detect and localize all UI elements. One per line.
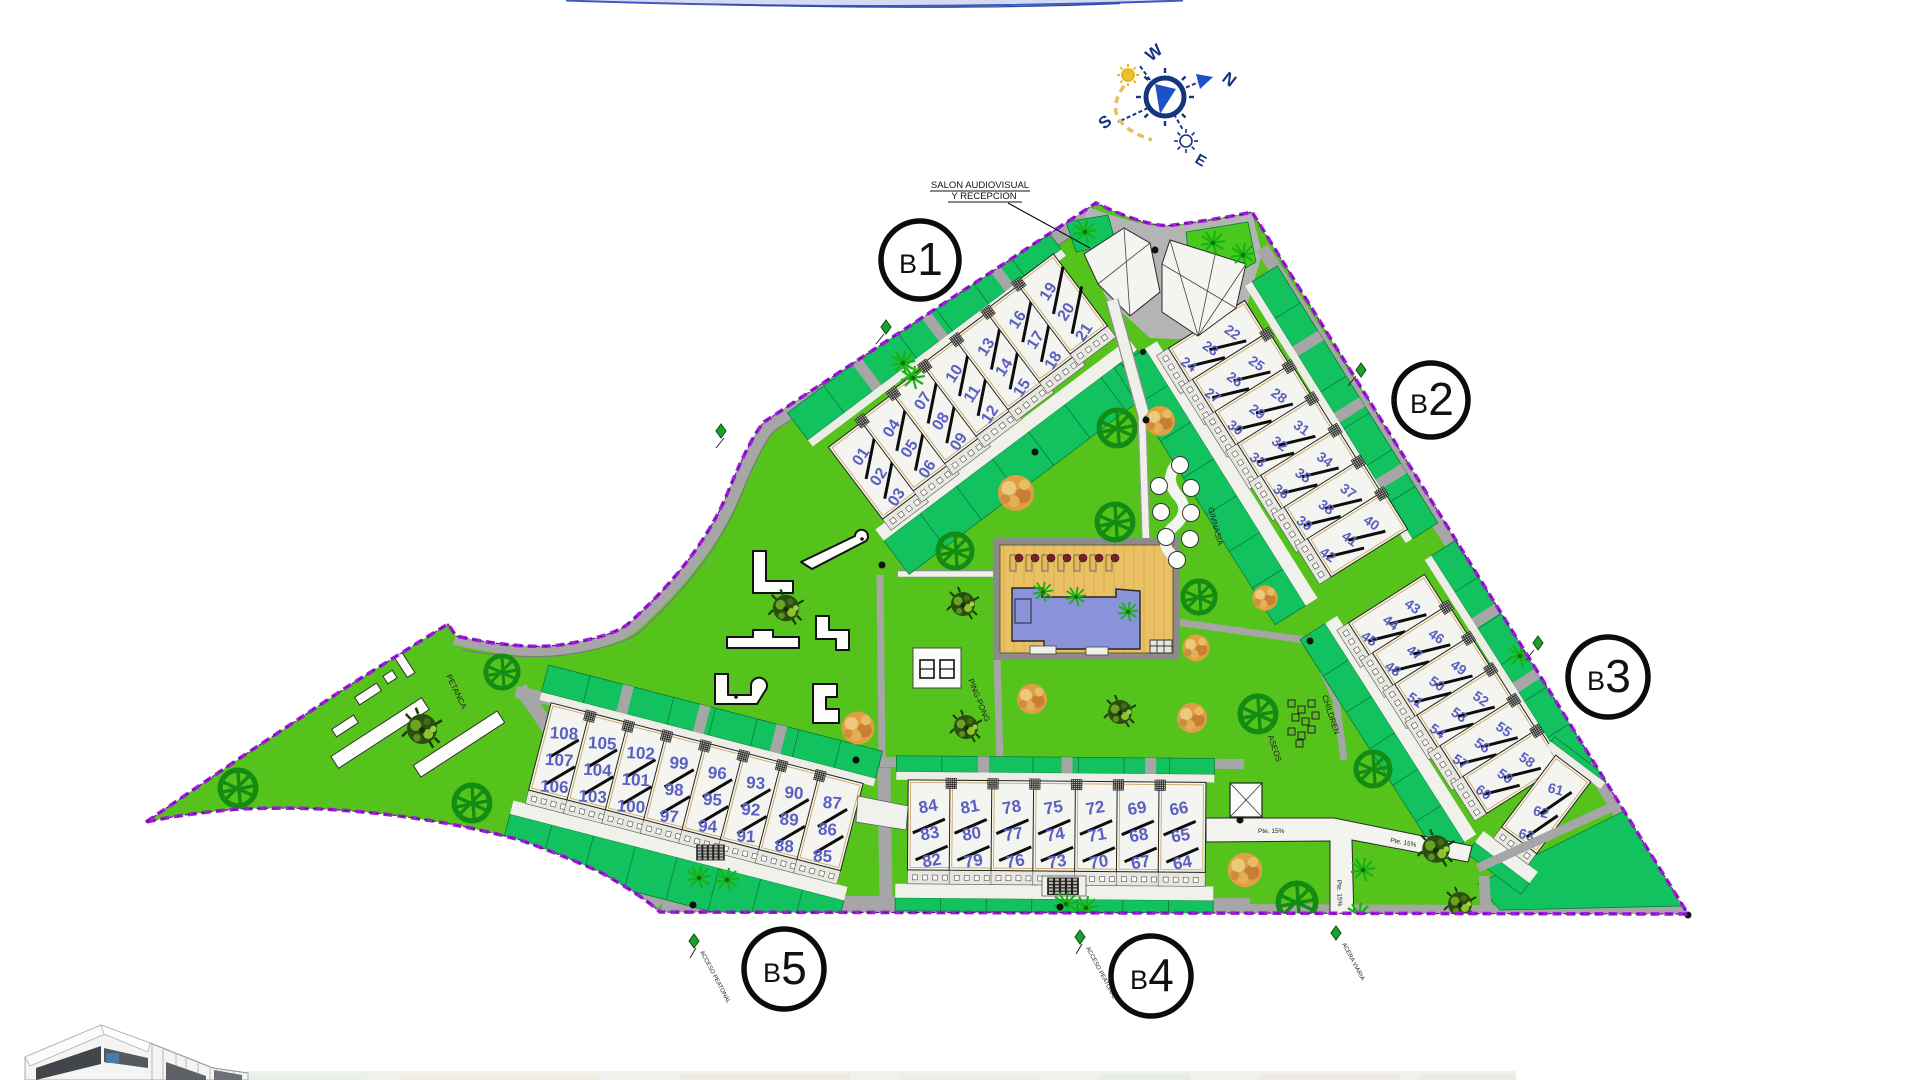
svg-text:88: 88: [774, 836, 794, 856]
svg-text:4: 4: [1148, 949, 1174, 1001]
svg-text:B: B: [1410, 389, 1428, 419]
svg-text:67: 67: [1130, 851, 1152, 873]
svg-text:80: 80: [961, 823, 983, 845]
svg-text:96: 96: [707, 763, 727, 783]
svg-text:94: 94: [698, 816, 719, 836]
svg-text:SALON AUDIOVISUAL: SALON AUDIOVISUAL: [931, 180, 1029, 191]
svg-text:91: 91: [736, 826, 756, 846]
svg-text:78: 78: [1001, 796, 1023, 818]
svg-text:95: 95: [702, 790, 722, 810]
svg-text:82: 82: [921, 850, 943, 872]
svg-text:2: 2: [1428, 373, 1454, 425]
svg-text:92: 92: [741, 800, 761, 820]
svg-text:B: B: [1587, 666, 1605, 696]
svg-text:Y RECEPCION: Y RECEPCION: [951, 191, 1016, 202]
svg-text:3: 3: [1605, 650, 1631, 702]
svg-text:98: 98: [664, 780, 684, 800]
svg-text:90: 90: [784, 783, 804, 803]
svg-text:103: 103: [578, 786, 607, 807]
svg-text:Pte. 15%: Pte. 15%: [1335, 880, 1343, 907]
svg-text:68: 68: [1128, 824, 1150, 846]
svg-text:83: 83: [919, 823, 941, 845]
svg-text:B: B: [899, 249, 917, 279]
svg-text:64: 64: [1172, 852, 1194, 874]
svg-text:99: 99: [669, 753, 689, 773]
svg-text:81: 81: [959, 796, 981, 818]
svg-text:Pte. 15%: Pte. 15%: [1258, 828, 1285, 835]
svg-text:65: 65: [1170, 825, 1192, 847]
svg-text:66: 66: [1168, 798, 1190, 820]
svg-text:B: B: [763, 958, 781, 988]
svg-text:74: 74: [1044, 824, 1066, 846]
svg-text:89: 89: [779, 810, 799, 830]
svg-text:71: 71: [1086, 824, 1108, 846]
svg-text:97: 97: [659, 806, 679, 826]
svg-text:106: 106: [540, 776, 569, 797]
svg-text:93: 93: [746, 773, 766, 793]
svg-text:86: 86: [817, 819, 837, 839]
svg-text:B: B: [1130, 965, 1148, 995]
svg-text:69: 69: [1126, 797, 1148, 819]
svg-text:76: 76: [1004, 850, 1026, 872]
svg-text:75: 75: [1043, 797, 1065, 819]
svg-text:1: 1: [917, 233, 943, 285]
svg-text:5: 5: [781, 942, 807, 994]
svg-text:105: 105: [588, 733, 617, 754]
svg-text:107: 107: [544, 750, 573, 771]
svg-text:100: 100: [616, 796, 645, 817]
svg-text:72: 72: [1084, 797, 1106, 819]
svg-text:104: 104: [583, 760, 613, 781]
svg-text:85: 85: [813, 846, 833, 866]
svg-text:70: 70: [1088, 851, 1110, 873]
svg-text:79: 79: [963, 850, 985, 872]
svg-text:108: 108: [549, 723, 578, 744]
svg-text:73: 73: [1046, 851, 1068, 873]
svg-text:77: 77: [1003, 823, 1025, 845]
svg-text:84: 84: [917, 795, 939, 817]
svg-text:102: 102: [626, 743, 655, 764]
svg-text:101: 101: [621, 770, 650, 791]
svg-text:87: 87: [822, 793, 842, 813]
